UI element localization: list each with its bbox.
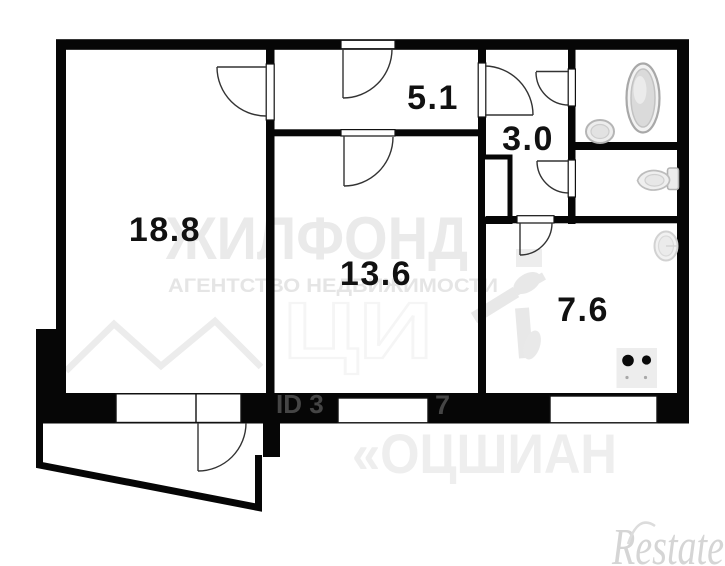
- svg-text:5.1: 5.1: [407, 79, 459, 117]
- svg-text:3.0: 3.0: [502, 120, 554, 158]
- svg-text:7: 7: [435, 390, 450, 420]
- svg-text:ID 3: ID 3: [276, 389, 324, 419]
- svg-text:«ОЦШИАН: «ОЦШИАН: [352, 422, 617, 485]
- svg-text:ЦИ: ЦИ: [283, 286, 433, 375]
- svg-text:13.6: 13.6: [340, 255, 412, 293]
- svg-text:7.6: 7.6: [557, 291, 609, 329]
- svg-text:ЖИЛФОНД: ЖИЛФОНД: [165, 205, 468, 272]
- svg-text:18.8: 18.8: [129, 211, 201, 249]
